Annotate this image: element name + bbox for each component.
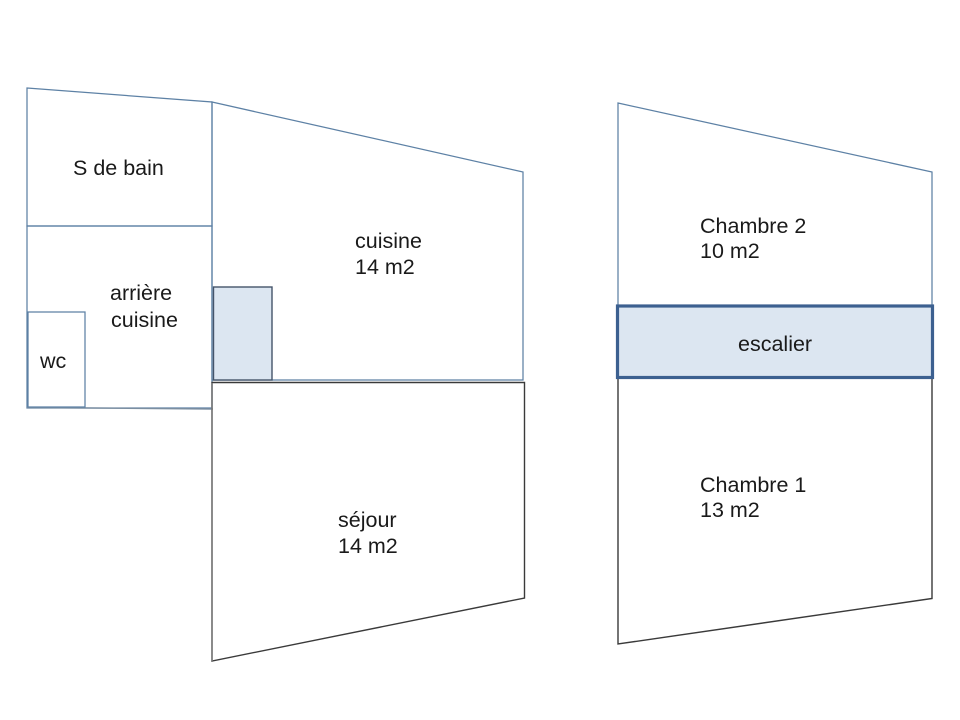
floor-plan-slide: S de bain arrière cuisine wc cuisine 14 … <box>0 0 960 720</box>
chambre-1-area-label: 13 m2 <box>700 498 760 522</box>
floor-plan-canvas: S de bain arrière cuisine wc cuisine 14 … <box>0 0 960 720</box>
closet-block <box>214 287 273 380</box>
chambre-2-room-outline <box>618 103 932 307</box>
cuisine-label: cuisine <box>355 229 422 253</box>
cuisine-area-label: 14 m2 <box>355 255 415 279</box>
wc-label: wc <box>39 349 67 373</box>
arriere-cuisine-label-line1: arrière <box>110 281 172 305</box>
chambre-1-room-outline <box>618 378 932 644</box>
ground-floor-plan: S de bain arrière cuisine wc cuisine 14 … <box>27 88 525 661</box>
arriere-cuisine-label-line2: cuisine <box>111 308 178 332</box>
escalier-label: escalier <box>738 332 812 356</box>
sejour-area-label: 14 m2 <box>338 534 398 558</box>
chambre-1-label: Chambre 1 <box>700 473 806 497</box>
chambre-2-area-label: 10 m2 <box>700 239 760 263</box>
sejour-label: séjour <box>338 508 397 532</box>
upper-floor-plan: Chambre 2 10 m2 escalier Chambre 1 13 m2 <box>618 103 933 644</box>
s-de-bain-label: S de bain <box>73 156 164 180</box>
chambre-2-label: Chambre 2 <box>700 214 806 238</box>
